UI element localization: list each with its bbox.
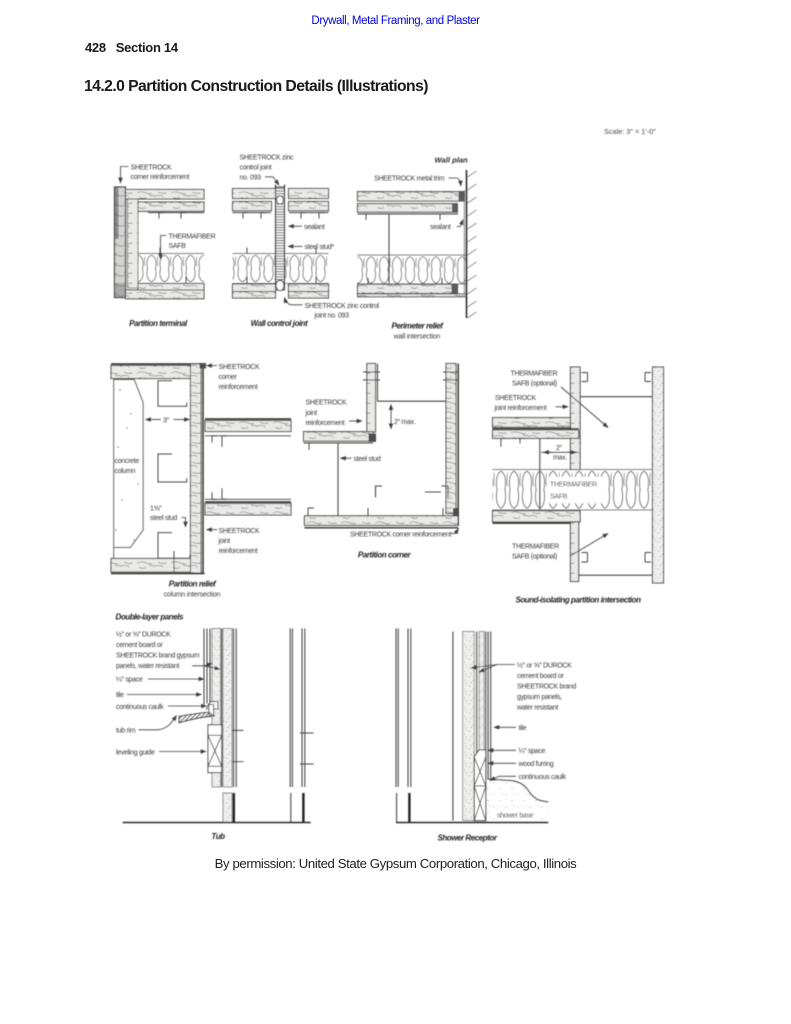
svg-text:SAFB (optional): SAFB (optional) xyxy=(512,381,557,388)
svg-text:wood furring: wood furring xyxy=(518,761,554,768)
svg-text:SHEETROCK: SHEETROCK xyxy=(306,400,347,407)
svg-text:2″: 2″ xyxy=(556,445,563,452)
svg-text:SHEETROCK: SHEETROCK xyxy=(219,364,260,371)
svg-text:Partition terminal: Partition terminal xyxy=(129,319,188,328)
svg-text:steel stud: steel stud xyxy=(354,456,381,463)
svg-text:2″ max.: 2″ max. xyxy=(394,419,416,426)
svg-text:steel stud*: steel stud* xyxy=(305,244,335,251)
svg-text:wall intersection: wall intersection xyxy=(393,334,441,341)
svg-text:column: column xyxy=(115,468,136,475)
svg-text:sealant: sealant xyxy=(304,224,325,231)
svg-text:tub rim: tub rim xyxy=(116,728,136,735)
svg-text:shower base: shower base xyxy=(497,813,534,820)
svg-text:corner: corner xyxy=(219,374,238,381)
svg-text:¼″ space: ¼″ space xyxy=(519,748,546,755)
svg-text:THERMAFIBER: THERMAFIBER xyxy=(169,234,216,241)
svg-text:panels, water resistant: panels, water resistant xyxy=(116,663,179,670)
svg-text:cement board or: cement board or xyxy=(116,642,163,649)
svg-text:cement board or: cement board or xyxy=(517,673,564,680)
svg-text:steel stud: steel stud xyxy=(150,515,177,522)
svg-text:continuous caulk: continuous caulk xyxy=(519,774,567,781)
svg-text:THERMAFIBER: THERMAFIBER xyxy=(512,544,559,551)
svg-text:SHEETROCK: SHEETROCK xyxy=(219,528,260,535)
svg-text:gypsum panels,: gypsum panels, xyxy=(517,694,562,701)
svg-text:SHEETROCK zinc control: SHEETROCK zinc control xyxy=(305,303,380,310)
svg-text:SHEETROCK zinc: SHEETROCK zinc xyxy=(240,155,295,162)
svg-text:Wall control joint: Wall control joint xyxy=(251,319,308,328)
svg-text:½″ or ⅝″ DUROCK: ½″ or ⅝″ DUROCK xyxy=(116,631,171,639)
svg-text:SHEETROCK: SHEETROCK xyxy=(495,395,536,402)
svg-text:Double-layer panels: Double-layer panels xyxy=(116,613,184,622)
svg-text:THERMAFIBER: THERMAFIBER xyxy=(511,371,558,378)
svg-text:SHEETROCK corner reinforcement: SHEETROCK corner reinforcement xyxy=(350,531,451,538)
svg-text:tile: tile xyxy=(519,725,527,732)
svg-text:SHEETROCK metal trim: SHEETROCK metal trim xyxy=(374,176,445,183)
svg-text:joint no. 093: joint no. 093 xyxy=(314,313,350,320)
svg-text:corner reinforcement: corner reinforcement xyxy=(131,174,190,181)
svg-text:SHEETROCK: SHEETROCK xyxy=(131,165,172,172)
svg-text:sealant: sealant xyxy=(430,224,451,231)
svg-text:reinforcement: reinforcement xyxy=(219,384,258,391)
svg-text:continuous caulk: continuous caulk xyxy=(116,704,164,711)
svg-text:column intersection: column intersection xyxy=(164,592,221,599)
svg-text:½″ or ⅝″ DUROCK: ½″ or ⅝″ DUROCK xyxy=(517,662,572,670)
svg-text:Perimeter relief: Perimeter relief xyxy=(391,322,444,331)
svg-text:max.: max. xyxy=(553,454,567,461)
svg-text:joint: joint xyxy=(305,410,318,417)
svg-text:1⅝″: 1⅝″ xyxy=(150,506,162,513)
svg-text:¼″ space: ¼″ space xyxy=(116,677,143,684)
svg-text:Tub: Tub xyxy=(211,832,225,841)
svg-text:joint reinforcement: joint reinforcement xyxy=(494,405,547,412)
svg-text:Scale: 3″ = 1′-0″: Scale: 3″ = 1′-0″ xyxy=(604,127,656,136)
svg-text:SAFB (optional): SAFB (optional) xyxy=(512,554,557,561)
svg-text:SAFB: SAFB xyxy=(550,494,568,501)
svg-text:3″: 3″ xyxy=(163,418,170,425)
svg-text:reinforcement: reinforcement xyxy=(219,548,258,555)
svg-text:Wall plan: Wall plan xyxy=(435,156,469,165)
svg-text:concrete: concrete xyxy=(115,458,140,465)
svg-text:SHEETROCK brand: SHEETROCK brand xyxy=(517,684,576,691)
svg-text:leveling guide: leveling guide xyxy=(116,750,155,757)
svg-text:water resistant: water resistant xyxy=(516,705,558,712)
svg-text:Shower Receptor: Shower Receptor xyxy=(437,834,497,843)
svg-text:no. 093: no. 093 xyxy=(240,175,262,182)
svg-text:THERMAFIBER: THERMAFIBER xyxy=(550,482,597,489)
svg-text:joint: joint xyxy=(218,538,231,545)
svg-text:control joint: control joint xyxy=(240,165,272,172)
svg-text:SAFB: SAFB xyxy=(169,243,187,250)
svg-text:Partition corner: Partition corner xyxy=(358,551,412,560)
svg-text:Partition relief: Partition relief xyxy=(169,580,217,589)
svg-text:reinforcement: reinforcement xyxy=(306,420,345,427)
svg-text:Sound-isolating partition inte: Sound-isolating partition intersection xyxy=(515,596,641,605)
svg-text:tile: tile xyxy=(116,692,124,699)
svg-text:SHEETROCK brand gypsum: SHEETROCK brand gypsum xyxy=(116,653,200,660)
